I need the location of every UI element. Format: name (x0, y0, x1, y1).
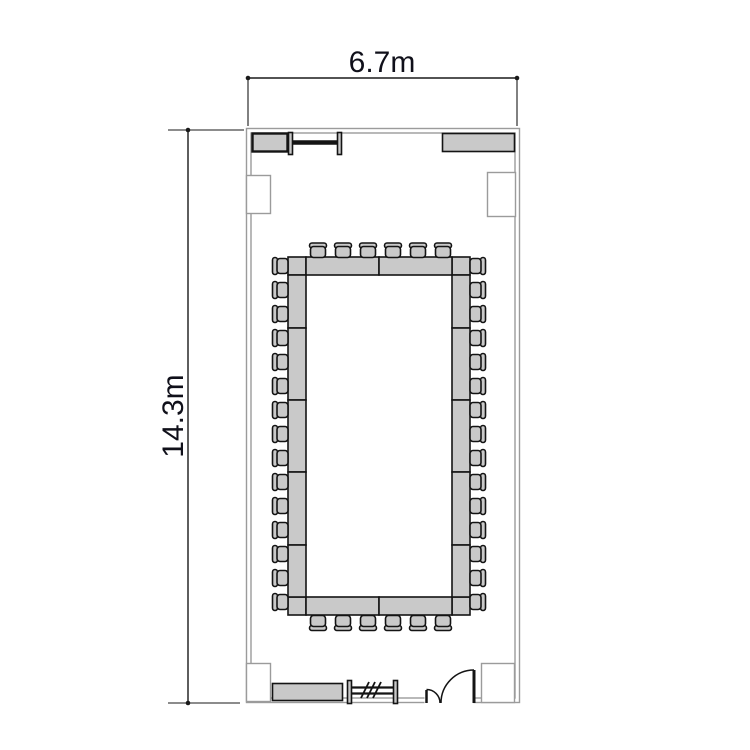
table-segment (452, 472, 470, 545)
chair-part (277, 499, 288, 514)
floor-plan: 6.7m 14.3m (0, 0, 750, 750)
table-segment (452, 400, 470, 472)
chair (410, 616, 427, 631)
pilaster-bottom-right (482, 664, 515, 703)
chair-part (411, 616, 426, 627)
chair-part (277, 475, 288, 490)
chair (273, 522, 289, 539)
chair-part (277, 307, 288, 322)
height-dimension-label: 14.3m (157, 374, 190, 457)
dimension-width: 6.7m (246, 46, 520, 126)
chair-part (470, 547, 481, 562)
chair (273, 450, 289, 467)
dimension-tick (186, 701, 191, 706)
chair (273, 546, 289, 563)
chair (435, 616, 452, 631)
chair-part (386, 247, 401, 258)
table-corner (288, 257, 306, 275)
table-segment (379, 257, 452, 275)
chair-part (361, 247, 376, 258)
table-corner (452, 597, 470, 615)
chair (310, 243, 327, 258)
table-segment (306, 597, 379, 615)
chair (273, 426, 289, 443)
chair (470, 546, 486, 563)
chair-part (277, 283, 288, 298)
dimension-tick (246, 76, 251, 81)
radiator-post-right (394, 681, 398, 704)
door-opening (425, 696, 474, 706)
chair (435, 243, 452, 258)
table-segment (288, 472, 306, 545)
table-segment (288, 328, 306, 400)
table-segment (288, 400, 306, 472)
chair-part (386, 616, 401, 627)
chair (273, 570, 289, 587)
credenza-top-right (443, 134, 515, 152)
pilaster-top-left (247, 176, 271, 214)
chair-part (470, 427, 481, 442)
screen-post-right (338, 133, 342, 155)
chair-part (277, 403, 288, 418)
chair (470, 522, 486, 539)
chair (470, 354, 486, 371)
chair-part (470, 379, 481, 394)
credenza-bottom-left (273, 684, 343, 701)
chair-part (470, 475, 481, 490)
chair-part (336, 616, 351, 627)
dimension-tick (515, 76, 520, 81)
chair (273, 594, 289, 611)
floor-plan-canvas: 6.7m 14.3m (0, 0, 750, 750)
chair-part (411, 247, 426, 258)
table-segment (452, 328, 470, 400)
chair (273, 498, 289, 515)
chair-part (436, 616, 451, 627)
chair (335, 616, 352, 631)
chair-part (470, 259, 481, 274)
dimension-tick (186, 128, 191, 133)
chair-part (470, 307, 481, 322)
chair (470, 474, 486, 491)
table-corner (288, 597, 306, 615)
table-segment (379, 597, 452, 615)
chair (273, 282, 289, 299)
chair (385, 243, 402, 258)
chair (470, 378, 486, 395)
chair-part (277, 451, 288, 466)
chair (273, 258, 289, 275)
chair-part (277, 331, 288, 346)
chair-part (277, 595, 288, 610)
chair-part (277, 523, 288, 538)
chair (470, 570, 486, 587)
chair (470, 450, 486, 467)
table-segment (452, 275, 470, 328)
chair-part (436, 247, 451, 258)
chair (273, 474, 289, 491)
chair-part (277, 259, 288, 274)
chair (470, 282, 486, 299)
chair (470, 594, 486, 611)
chair-part (311, 247, 326, 258)
screen-post-left (289, 133, 293, 155)
chair-part (470, 355, 481, 370)
chair (470, 258, 486, 275)
chair (410, 243, 427, 258)
chair (273, 402, 289, 419)
chair-part (311, 616, 326, 627)
radiator-bottom (348, 681, 398, 704)
chair-part (336, 247, 351, 258)
pilaster-bottom-left (247, 664, 271, 702)
chair (385, 616, 402, 631)
chair-part (470, 523, 481, 538)
chair-part (470, 403, 481, 418)
chair (360, 243, 377, 258)
chair-part (361, 616, 376, 627)
screen-top (289, 133, 342, 155)
chair-part (277, 355, 288, 370)
chair (310, 616, 327, 631)
chair (273, 306, 289, 323)
chair-part (470, 499, 481, 514)
table-corner (452, 257, 470, 275)
dimension-height: 14.3m (157, 128, 244, 706)
conference-table-ring (288, 257, 470, 615)
pilaster-top-right (488, 173, 516, 217)
chair (470, 306, 486, 323)
width-dimension-label: 6.7m (349, 46, 416, 79)
chair-part (470, 451, 481, 466)
chair-part (277, 379, 288, 394)
chair-part (470, 571, 481, 586)
chair (273, 330, 289, 347)
chair (470, 330, 486, 347)
chair (470, 426, 486, 443)
chair-part (277, 427, 288, 442)
chair-part (277, 547, 288, 562)
table-segment (288, 275, 306, 328)
chair-part (470, 283, 481, 298)
chair (273, 378, 289, 395)
table-segment (306, 257, 379, 275)
table-segment (452, 545, 470, 597)
chair (360, 616, 377, 631)
chair-part (277, 571, 288, 586)
chair (470, 498, 486, 515)
radiator-post-left (348, 681, 352, 704)
chair (273, 354, 289, 371)
chair (335, 243, 352, 258)
chair (470, 402, 486, 419)
table-segment (288, 545, 306, 597)
credenza-top-left (253, 134, 288, 152)
chair-part (470, 595, 481, 610)
chair-part (470, 331, 481, 346)
